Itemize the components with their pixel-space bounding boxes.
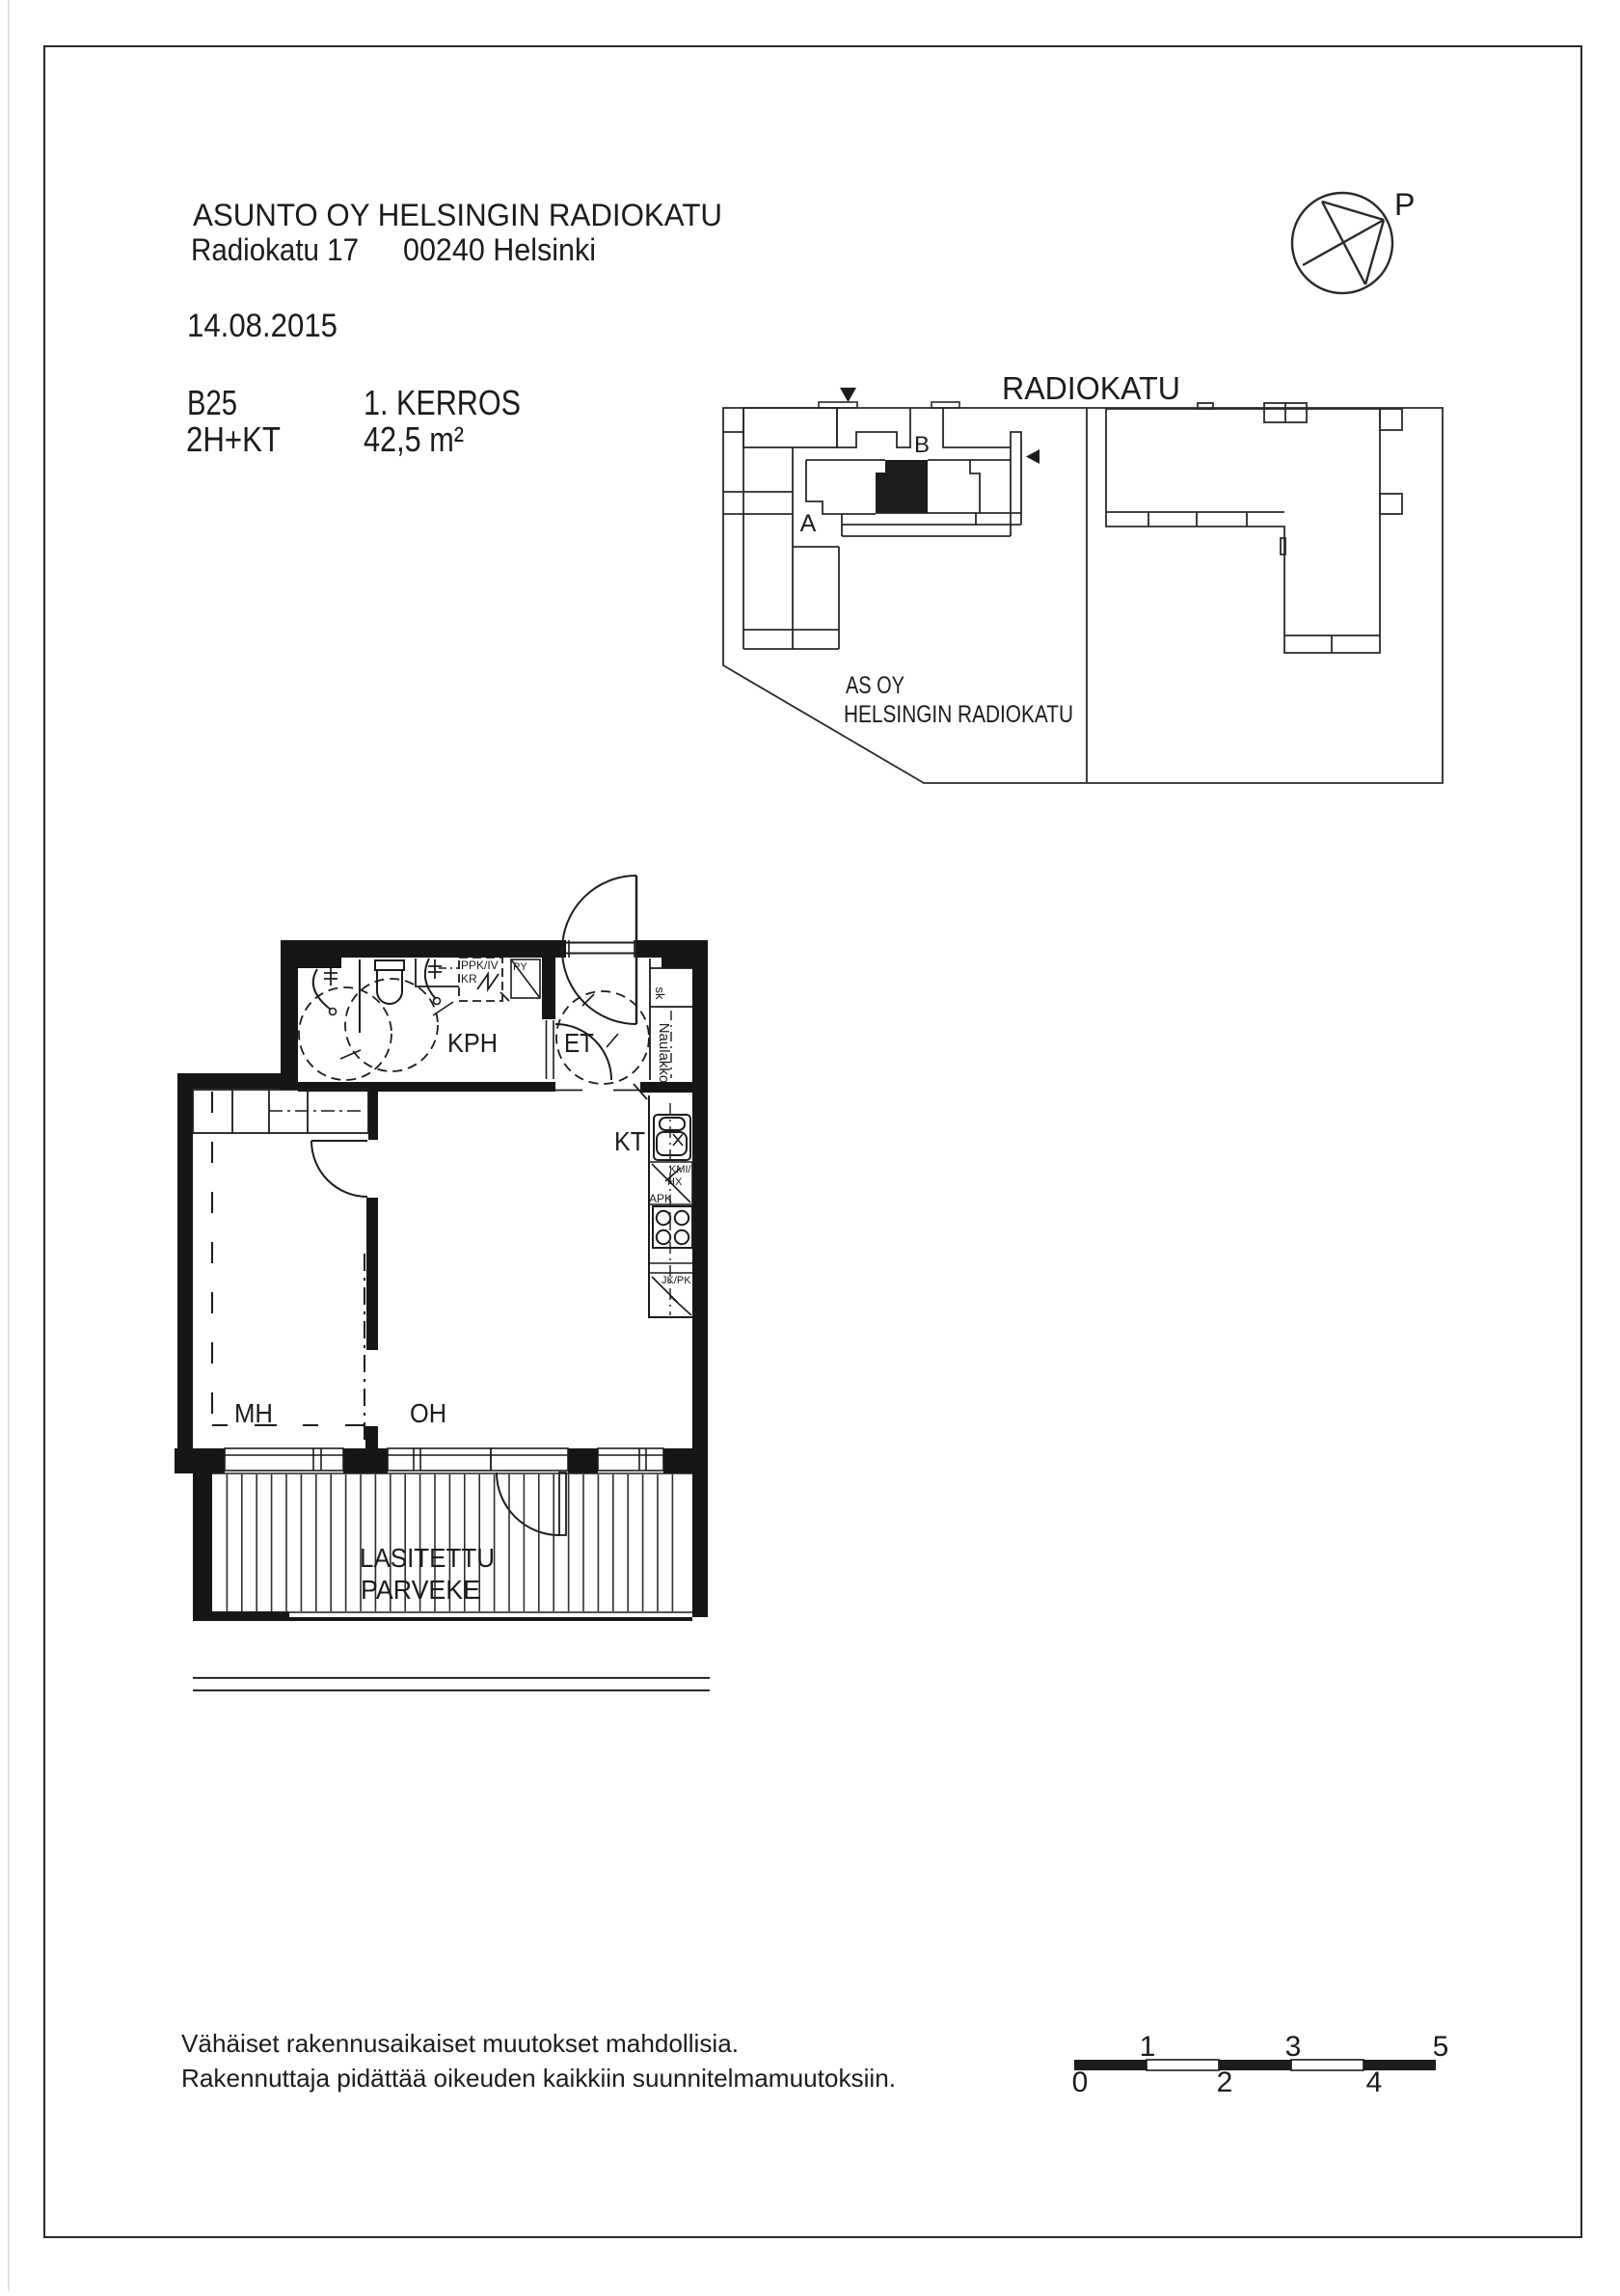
svg-text:OH: OH: [410, 1398, 446, 1428]
svg-text:RADIOKATU: RADIOKATU: [1002, 370, 1180, 406]
svg-text:B25: B25: [187, 383, 237, 422]
svg-text:Radiokatu 17: Radiokatu 17: [191, 232, 359, 267]
svg-text:HX: HX: [667, 1176, 683, 1188]
svg-text:1. KERROS: 1. KERROS: [364, 383, 521, 422]
svg-text:APK: APK: [649, 1192, 672, 1205]
svg-text:MH: MH: [234, 1398, 273, 1428]
svg-text:P: P: [1394, 187, 1415, 222]
svg-text:PY: PY: [513, 961, 527, 973]
svg-text:AS OY: AS OY: [846, 672, 904, 699]
svg-text:ET: ET: [564, 1028, 594, 1058]
svg-text:0: 0: [1072, 2066, 1089, 2098]
svg-text:3: 3: [1285, 2031, 1302, 2063]
svg-text:Vähäiset rakennusaikaiset muut: Vähäiset rakennusaikaiset muutokset mahd…: [181, 2029, 739, 2058]
svg-text:14.08.2015: 14.08.2015: [187, 308, 337, 344]
svg-text:JK/PK: JK/PK: [661, 1275, 691, 1286]
svg-text:Naulakko: Naulakko: [656, 1023, 672, 1084]
svg-text:PPK/IV: PPK/IV: [461, 959, 499, 972]
svg-text:HELSINGIN RADIOKATU: HELSINGIN RADIOKATU: [844, 701, 1073, 728]
svg-text:ASUNTO OY HELSINGIN RADIOKATU: ASUNTO OY HELSINGIN RADIOKATU: [193, 198, 722, 232]
svg-text:1: 1: [1140, 2031, 1156, 2063]
svg-text:2H+KT: 2H+KT: [186, 419, 281, 459]
svg-text:00240 Helsinki: 00240 Helsinki: [403, 232, 596, 267]
svg-text:B: B: [914, 432, 930, 458]
svg-text:KMI/: KMI/: [669, 1164, 692, 1175]
svg-text:42,5 m²: 42,5 m²: [364, 419, 464, 459]
svg-text:KPH: KPH: [447, 1028, 498, 1058]
svg-text:Rakennuttaja pidättää oikeuden: Rakennuttaja pidättää oikeuden kaikkiin …: [181, 2064, 896, 2093]
svg-text:2: 2: [1217, 2066, 1233, 2098]
svg-text:4: 4: [1366, 2066, 1383, 2098]
svg-text:KR: KR: [461, 972, 477, 986]
svg-text:LASITETTU: LASITETTU: [360, 1543, 495, 1573]
svg-text:KT: KT: [614, 1126, 645, 1156]
svg-text:A: A: [800, 510, 817, 537]
svg-text:sk: sk: [653, 987, 667, 1001]
svg-text:PARVEKE: PARVEKE: [361, 1575, 480, 1605]
svg-text:5: 5: [1433, 2031, 1449, 2063]
